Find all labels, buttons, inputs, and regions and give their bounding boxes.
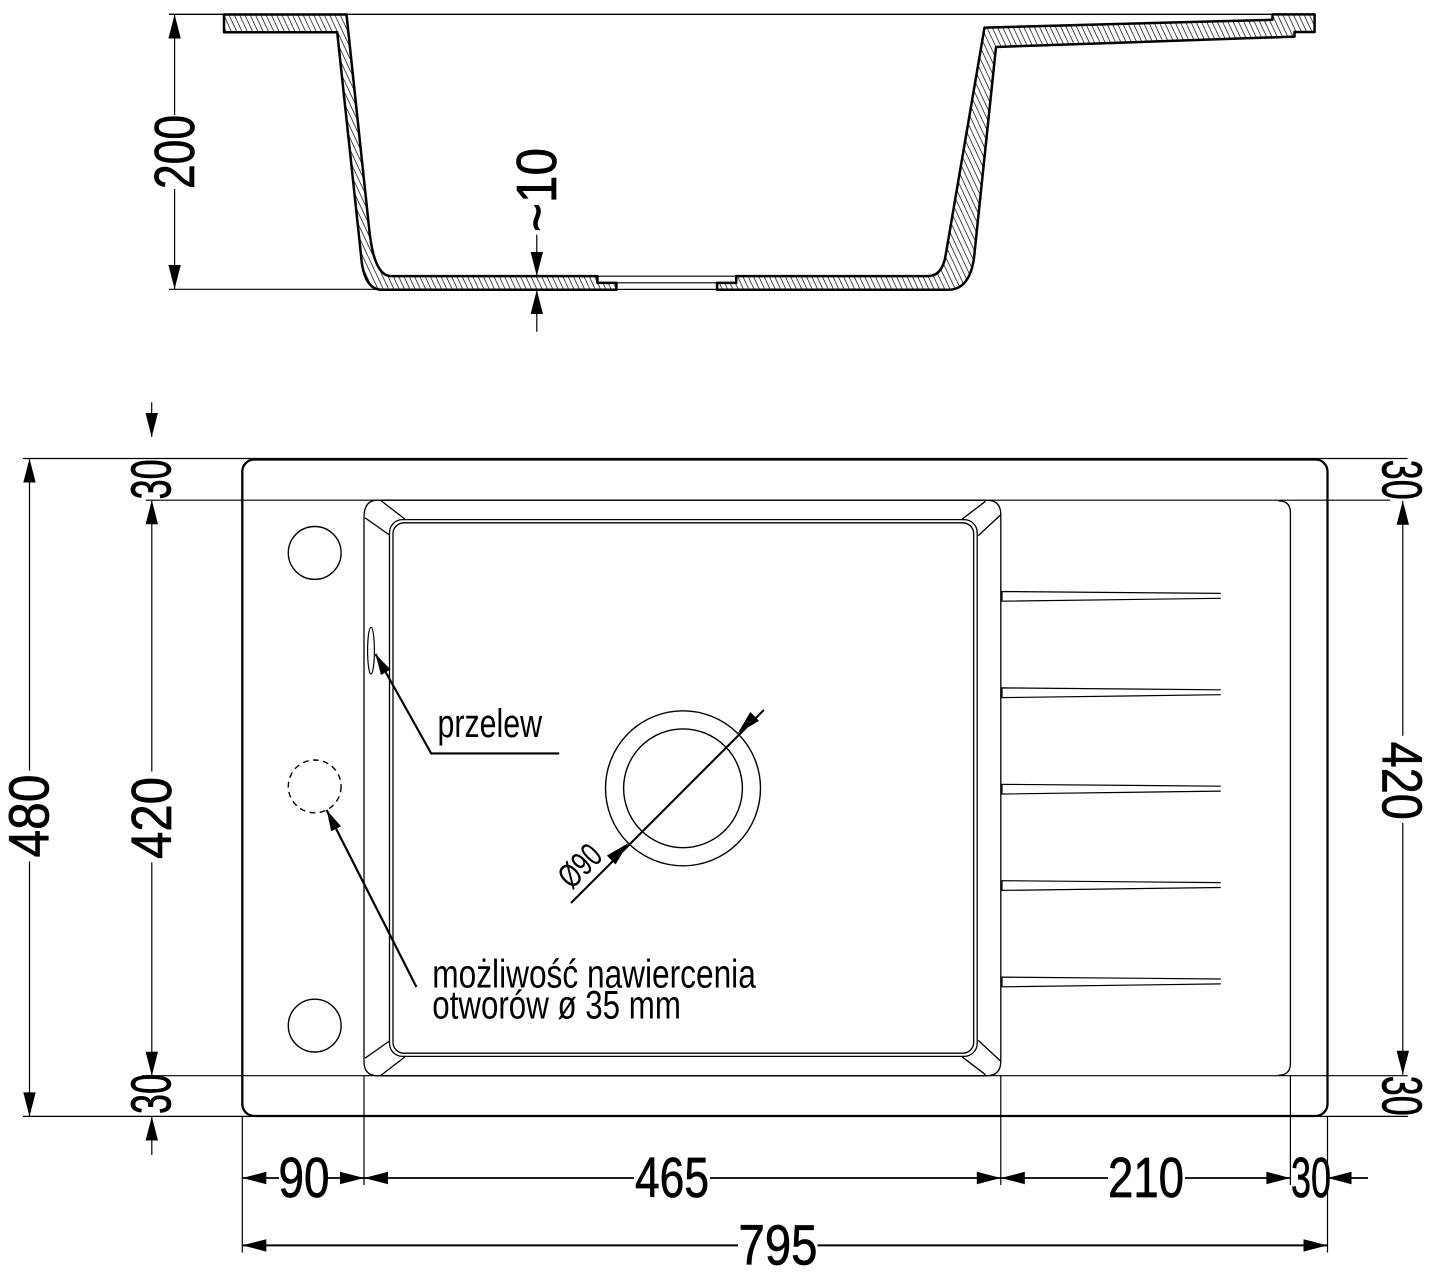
svg-text:otworów ø 35 mm: otworów ø 35 mm: [432, 984, 681, 1028]
svg-text:30: 30: [1291, 1146, 1331, 1210]
svg-text:~10: ~10: [505, 148, 569, 232]
svg-text:795: 795: [739, 1213, 818, 1277]
svg-text:90: 90: [279, 1146, 330, 1210]
svg-text:30: 30: [1370, 1076, 1434, 1116]
svg-text:30: 30: [120, 459, 184, 499]
svg-text:30: 30: [1370, 460, 1434, 500]
svg-text:465: 465: [635, 1146, 709, 1210]
svg-text:210: 210: [1108, 1146, 1184, 1210]
svg-text:420: 420: [120, 777, 184, 859]
svg-text:200: 200: [143, 115, 207, 189]
svg-text:przelew: przelew: [438, 702, 543, 746]
svg-text:420: 420: [1370, 742, 1434, 820]
svg-text:480: 480: [0, 775, 62, 858]
svg-text:30: 30: [120, 1074, 184, 1114]
